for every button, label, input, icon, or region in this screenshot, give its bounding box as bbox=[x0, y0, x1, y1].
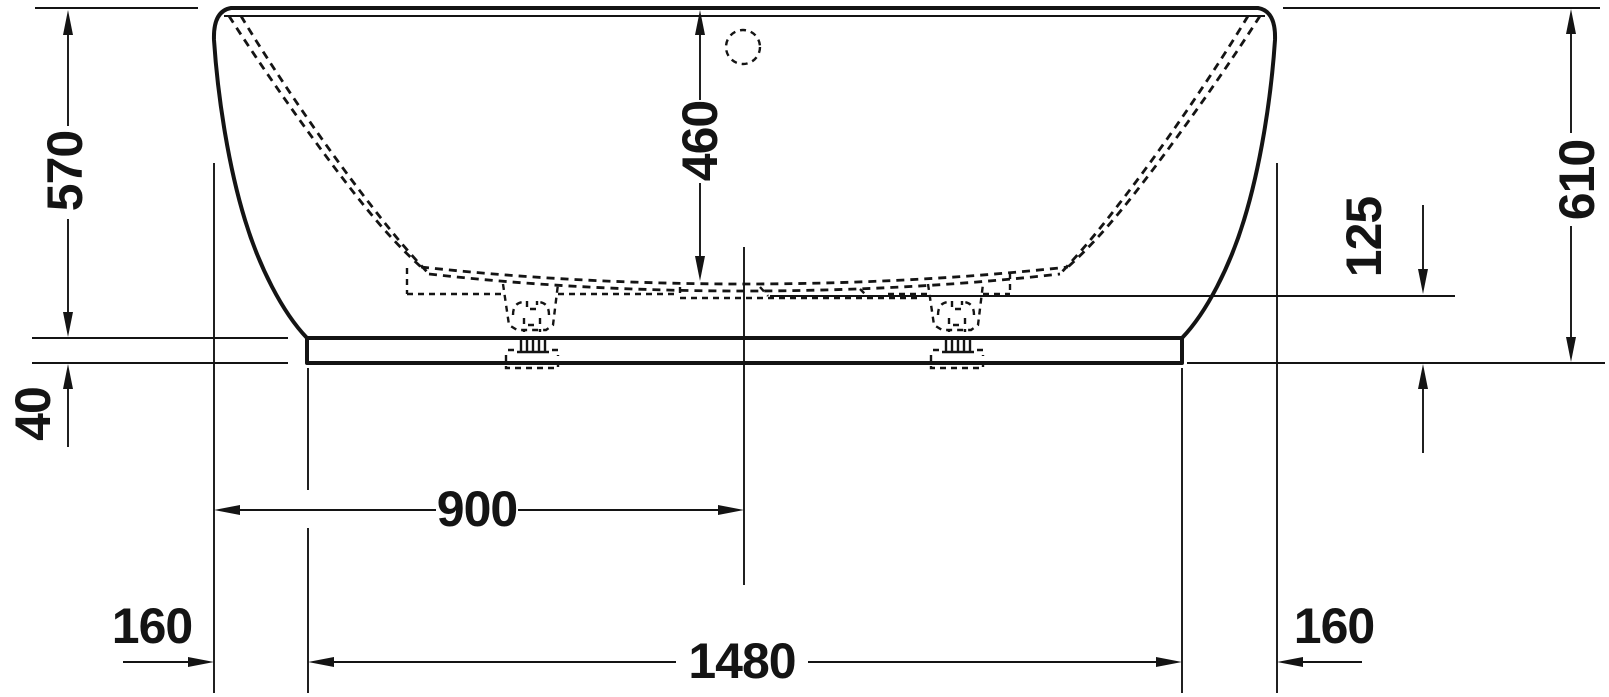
arrow-left-icon bbox=[308, 657, 334, 667]
arrow-down-icon bbox=[695, 256, 705, 281]
dimension-160-right: 160 bbox=[1277, 598, 1374, 667]
arrow-right-icon bbox=[718, 505, 744, 515]
arrow-left-icon bbox=[214, 505, 240, 515]
dimension-40: 40 bbox=[5, 364, 73, 447]
arrow-down-icon bbox=[1566, 337, 1576, 362]
dimension-label-125: 125 bbox=[1336, 197, 1392, 278]
dimension-label-40: 40 bbox=[5, 387, 61, 441]
arrow-right-icon bbox=[188, 657, 214, 667]
dimension-label-160-right: 160 bbox=[1294, 598, 1374, 654]
foot-left bbox=[517, 340, 549, 352]
dimension-1480: 1480 bbox=[308, 633, 1182, 689]
dimension-label-460: 460 bbox=[672, 101, 728, 181]
dimension-label-570: 570 bbox=[37, 131, 93, 211]
inner-wall-left-outer bbox=[229, 16, 421, 267]
dimension-610: 610 bbox=[1549, 9, 1605, 362]
dimension-label-610: 610 bbox=[1549, 140, 1605, 220]
dimension-label-160-left: 160 bbox=[112, 598, 192, 654]
adjuster-screw-left bbox=[513, 301, 549, 332]
dimension-label-900: 900 bbox=[437, 481, 517, 537]
foot-right bbox=[942, 340, 974, 352]
dimension-460: 460 bbox=[672, 10, 728, 281]
arrow-down-icon bbox=[1418, 269, 1428, 294]
inner-wall-left-inner bbox=[241, 16, 429, 274]
arrow-up-icon bbox=[1566, 9, 1576, 34]
dimension-160-left: 160 bbox=[112, 598, 214, 667]
dimension-label-1480: 1480 bbox=[688, 633, 795, 689]
overflow-circle-icon bbox=[726, 30, 760, 64]
support-bracket-right bbox=[928, 284, 983, 330]
inner-wall-right-outer bbox=[1068, 16, 1260, 267]
arrow-down-icon bbox=[63, 312, 73, 337]
arrow-up-icon bbox=[695, 10, 705, 35]
technical-drawing-page: 570 40 460 610 125 900 160 bbox=[0, 0, 1609, 697]
arrow-up-icon bbox=[63, 364, 73, 389]
arrow-left-icon bbox=[1277, 657, 1303, 667]
arrow-right-icon bbox=[1156, 657, 1182, 667]
dimension-900: 900 bbox=[214, 481, 744, 537]
dimension-125: 125 bbox=[1336, 197, 1428, 453]
arrow-up-icon bbox=[1418, 364, 1428, 389]
adjuster-screw-right bbox=[938, 301, 974, 332]
bathtub-elevation-drawing: 570 40 460 610 125 900 160 bbox=[0, 0, 1609, 697]
inner-wall-right-inner bbox=[1060, 16, 1248, 274]
arrow-up-icon bbox=[63, 10, 73, 35]
support-bracket-left bbox=[503, 284, 558, 330]
support-rail bbox=[407, 268, 1010, 294]
dimension-570: 570 bbox=[37, 10, 93, 337]
